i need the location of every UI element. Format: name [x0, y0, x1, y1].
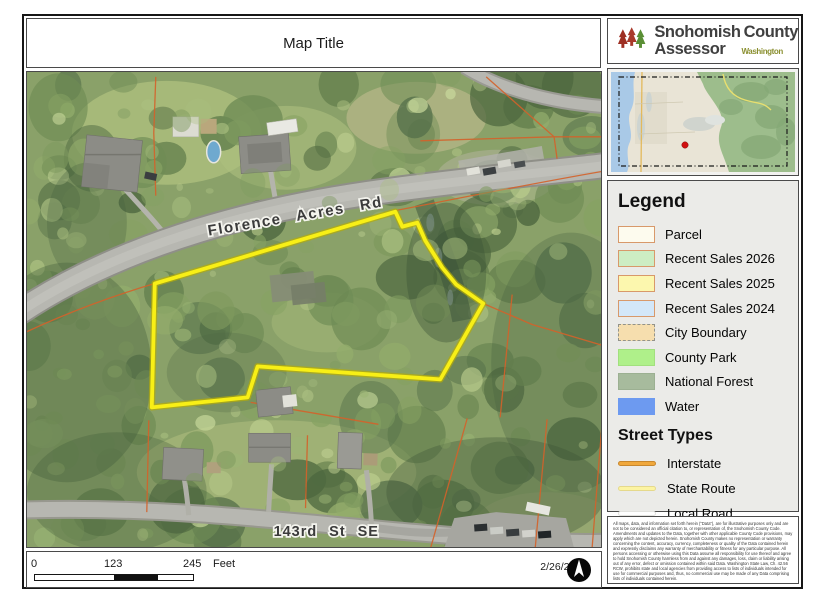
scale-bar-box: 0 123 245 Feet 2/26/2026: [26, 551, 602, 588]
logo-word-snohomish: Snohomish: [654, 23, 740, 41]
legend-swatch: [618, 250, 655, 267]
north-arrow-icon: [565, 556, 593, 584]
local-road-line-swatch: [618, 511, 656, 516]
house: [249, 433, 291, 462]
legend-swatch: [618, 226, 655, 243]
scale-tick-123: 123: [104, 558, 122, 570]
logo-text: SnohomishCounty Assessor Washington: [654, 24, 798, 58]
legend-title: Legend: [618, 191, 798, 213]
legend-swatch: [618, 398, 655, 415]
scale-bar: [34, 574, 194, 581]
legend-item-recent-sales-2024: Recent Sales 2024: [608, 296, 798, 321]
legend-item-interstate: Interstate: [608, 451, 798, 476]
trees-logo-icon: [616, 26, 649, 56]
logo-box: SnohomishCounty Assessor Washington: [607, 18, 799, 64]
road-label-143rd-st-se: 143rd St SE: [274, 524, 379, 540]
legend-swatch: [618, 349, 655, 366]
pool: [207, 141, 221, 163]
legend-swatch: [618, 373, 655, 390]
street-types-title: Street Types: [618, 427, 798, 445]
county-overview-map: [611, 72, 795, 172]
legend-swatch: [618, 300, 655, 317]
legend-item-national-forest: National Forest: [608, 370, 798, 395]
map-viewport: Florence Acres Rd 143rd St SE: [26, 71, 602, 548]
interstate-line-swatch: [618, 461, 656, 466]
location-dot: [682, 142, 688, 148]
legend-item-recent-sales-2026: Recent Sales 2026: [608, 247, 798, 272]
disclaimer-box: All maps, data, and information set fort…: [607, 516, 799, 584]
scale-tick-0: 0: [31, 558, 37, 570]
legend-item-county-park: County Park: [608, 345, 798, 370]
legend-swatch: [618, 324, 655, 341]
legend-item-water: Water: [608, 394, 798, 419]
scale-tick-245: 245: [183, 558, 201, 570]
legend-swatch: [618, 275, 655, 292]
scale-unit: Feet: [213, 558, 235, 570]
disclaimer-text: All maps, data, and information set fort…: [613, 521, 793, 581]
state-route-line-swatch: [618, 486, 656, 491]
house: [81, 135, 142, 192]
logo-word-county: County: [744, 23, 798, 41]
assessor-map-page: Map Title: [0, 0, 825, 608]
logo-state: Washington: [741, 48, 782, 56]
aerial-map: Florence Acres Rd 143rd St SE: [27, 72, 601, 547]
map-title-box: Map Title: [26, 18, 601, 68]
overview-map-box: [607, 68, 799, 176]
legend-item-recent-sales-2025: Recent Sales 2025: [608, 271, 798, 296]
legend: Legend Parcel Recent Sales 2026 Recent S…: [607, 180, 799, 512]
driveway: [269, 464, 272, 512]
logo-word-assessor: Assessor: [654, 41, 725, 58]
legend-item-city-boundary: City Boundary: [608, 320, 798, 345]
map-title: Map Title: [283, 35, 344, 52]
legend-item-state-route: State Route: [608, 476, 798, 501]
legend-item-parcel: Parcel: [608, 222, 798, 247]
